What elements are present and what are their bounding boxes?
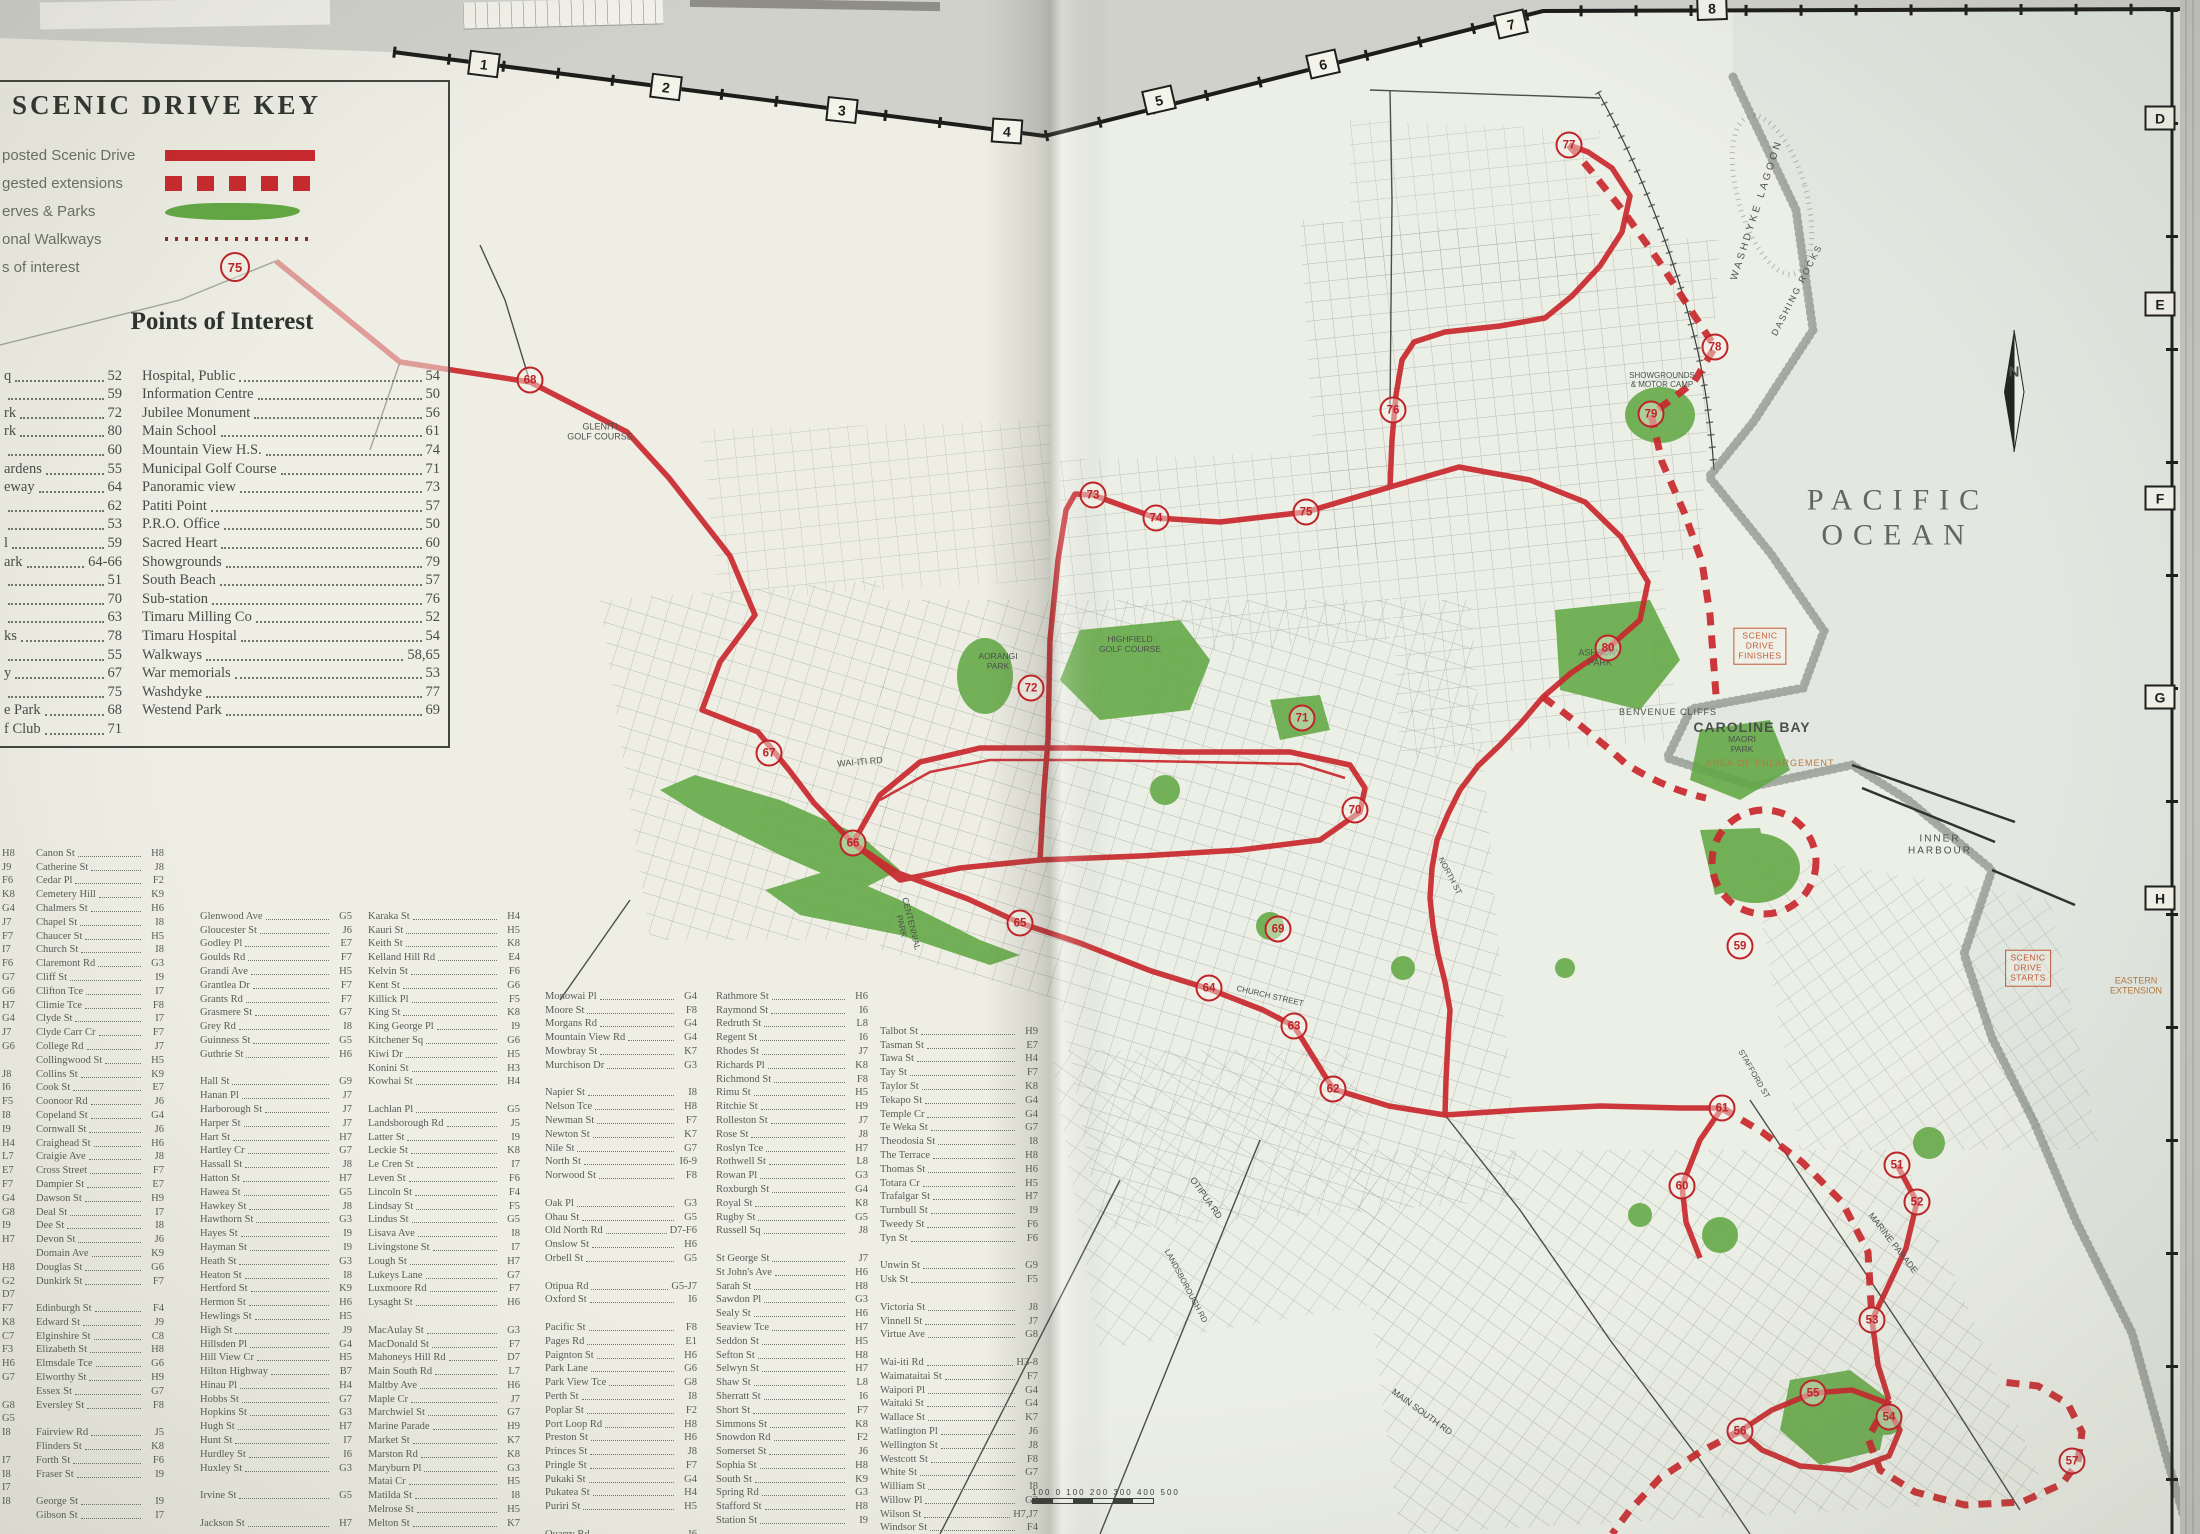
grid-reference: I9 [500,1132,520,1143]
index-entry: Copeland StG4 [36,1107,164,1121]
index-entry: Seaview TceH7 [716,1319,868,1333]
grid-reference: L8 [848,1377,868,1388]
poi-map-marker: 68 [517,367,544,394]
dot-leader [412,1071,497,1072]
street-name: Eversley St [36,1400,84,1411]
dot-leader [587,1344,674,1345]
street-name: Cemetery Hill [36,889,96,900]
street-name: King St [368,1007,400,1018]
index-entry: College RdJ7 [36,1038,164,1052]
dot-leader [426,1278,497,1279]
index-entry: Hurdley StI6 [200,1446,352,1460]
index-entry: Devon StJ6 [36,1231,164,1245]
index-entry: Windsor StF4 [880,1520,1038,1534]
dot-leader [591,1440,674,1441]
index-entry: Quarry RdI6 [545,1526,697,1534]
index-entry: Fraser StI9 [36,1466,164,1480]
poi-map-marker: 62 [1320,1076,1347,1103]
dot-leader [768,1068,845,1069]
street-name: Morgans Rd [545,1018,597,1029]
grid-reference: I6 [848,1391,868,1402]
grid-reference: I6 [332,1449,352,1460]
street-name: Unwin St [880,1260,920,1271]
street-name: Killick Pl [368,994,409,1005]
poi-entry: Main School61 [142,422,440,441]
grid-reference: F7 [144,1027,164,1038]
index-entry: I9 [2,1218,30,1232]
index-entry: F6 [2,873,30,887]
street-name: Devon St [36,1234,75,1245]
dot-leader [235,1443,329,1444]
index-entry: Matai CrH5 [368,1474,520,1488]
index-entry: Hart StH7 [200,1129,352,1143]
grid-reference: I9 [2,1220,22,1231]
street-name: Marchwiel St [368,1407,425,1418]
index-entry: H4 [2,1135,30,1149]
grid-reference: H4 [677,1487,697,1498]
street-name: Market St [368,1435,410,1446]
index-column: Monowai PlG4Moore StF8Morgans RdG4Mounta… [545,988,697,1534]
dot-leader [409,1484,497,1485]
grid-reference: E7 [144,1179,164,1190]
dot-leader [239,1498,329,1499]
index-entry: Douglas StG6 [36,1259,164,1273]
street-name: Seddon St [716,1336,759,1347]
index-entry: G5 [2,1411,30,1425]
dot-leader [409,1181,497,1182]
index-entry: Canon StH8 [36,845,164,859]
index-entry: Heath StG3 [200,1253,352,1267]
dot-leader [212,603,421,605]
dot-leader [257,1360,329,1361]
street-name: Clyde St [36,1013,72,1024]
grid-reference: I6 [677,1529,697,1534]
street-name: Collins St [36,1069,78,1080]
poi-map-marker: 57 [2059,1448,2086,1475]
grid-reference: H5 [144,1055,164,1066]
dot-leader [8,454,104,456]
street-name: Park View Tce [545,1377,606,1388]
dot-leader [73,1463,141,1464]
index-entry: Elginshire StC8 [36,1328,164,1342]
grid-reference: G5-J7 [671,1281,697,1292]
index-entry: K8 [2,1314,30,1328]
grid-reference: L7 [2,1151,22,1162]
poi-entry: y67 [4,664,122,683]
grid-reference: J6 [144,1096,164,1107]
poi-heading: Points of Interest [0,308,448,336]
grid-reference: G4 [1018,1109,1038,1120]
street-name: Redruth St [716,1018,761,1029]
grid-reference: G6 [677,1363,697,1374]
map-label: AREA OF ENLARGEMENT [1705,758,1834,768]
grid-reference: F6 [500,1173,520,1184]
dot-leader [89,1380,141,1381]
dot-leader [239,1264,329,1265]
index-entry: G4 [2,900,30,914]
grid-reference: F7 [677,1115,697,1126]
grid-reference: F5 [1018,1274,1038,1285]
index-column: H8J9F6K8G4J7F7I7F6G7G6H7G4J7G6J8I6F5I8I9… [2,845,30,1507]
index-entry: Church StI8 [36,942,164,956]
poi-map-marker: 51 [1884,1152,1911,1179]
street-name: George St [36,1496,78,1507]
dot-leader [755,1482,845,1483]
grid-reference: I7 [2,944,22,955]
street-name: Elmsdale Tce [36,1358,93,1369]
dot-leader [12,547,103,549]
street-name: Vinnell St [880,1316,922,1327]
street-name: Lindsay St [368,1201,413,1212]
street-name: Guinness St [200,1035,250,1046]
index-entry: Elizabeth StH8 [36,1342,164,1356]
street-name: Hall St [200,1076,229,1087]
street-name: Lukeys Lane [368,1270,423,1281]
grid-reference: H8 [848,1350,868,1361]
index-entry: Gloucester StJ6 [200,922,352,936]
grid-reference: D7 [500,1352,520,1363]
grid-reference: H4 [332,1380,352,1391]
grid-reference: H9 [1018,1026,1038,1037]
index-entry: Puriri StH5 [545,1498,697,1512]
street-name: Harborough St [200,1104,262,1115]
index-entry: L7 [2,1149,30,1163]
poi-name: Main School [142,423,217,440]
dot-leader [924,1517,1010,1518]
dot-leader [89,1159,141,1160]
grid-reference: F8 [677,1005,697,1016]
grid-reference: H4 [500,911,520,922]
street-name: Pukaki St [545,1474,586,1485]
poi-map-marker: 73 [1080,482,1107,509]
index-entry: G7 [2,969,30,983]
poi-grid-number: 57 [426,498,441,515]
index-entry: Hayman StI9 [200,1239,352,1253]
grid-reference: G6 [2,1041,22,1052]
street-name: Latter St [368,1132,404,1143]
street-name: Rothwell St [716,1156,766,1167]
grid-reference: F6 [500,966,520,977]
grid-reference: G4 [677,1474,697,1485]
dot-leader [410,1264,497,1265]
index-entry: Temple CrG4 [880,1106,1038,1120]
street-name: Keith St [368,938,403,949]
poi-entry: 60 [4,440,122,459]
index-entry: Thomas StH6 [880,1161,1038,1175]
index-entry: Mahoneys Hill RdD7 [368,1350,520,1364]
index-entry: Waipori PlG4 [880,1382,1038,1396]
street-name: Roslyn Tce [716,1143,763,1154]
dot-leader [248,1153,329,1154]
index-entry: Chalmers StH6 [36,900,164,914]
index-entry: Rimu StH5 [716,1085,868,1099]
dot-leader [588,1095,674,1096]
index-entry: Edinburgh StF4 [36,1300,164,1314]
index-entry: South StK9 [716,1471,868,1485]
street-name: Napier St [545,1087,585,1098]
street-name: William St [880,1481,925,1492]
grid-reference: L8 [848,1018,868,1029]
legend-label: erves & Parks [2,203,152,220]
index-entry: Shaw StL8 [716,1374,868,1388]
index-entry: Moore StF8 [545,1002,697,1016]
poi-grid-number: 67 [108,665,123,682]
grid-reference: H7 [2,1000,22,1011]
index-entry: Collins StK9 [36,1066,164,1080]
dot-leader [8,603,104,605]
grid-reference: F5 [500,994,520,1005]
grid-reference: K8 [2,1317,22,1328]
grid-reference: I8 [2,1469,22,1480]
index-entry: Landsborough RdJ5 [368,1115,520,1129]
index-entry: I8 [2,1466,30,1480]
street-name: Lysaght St [368,1297,413,1308]
index-entry: Hayes StI9 [200,1225,352,1239]
index-entry: Watlington PlJ6 [880,1423,1038,1437]
index-entry: Catherine StJ8 [36,859,164,873]
dot-leader [449,1360,497,1361]
dot-leader [412,1002,497,1003]
grid-reference: H7 [848,1363,868,1374]
street-name: Ritchie St [716,1101,758,1112]
poi-map-marker: 71 [1289,705,1316,732]
poi-grid-number: 54 [426,368,441,385]
dot-leader [411,1153,497,1154]
index-entry: Kent StG6 [368,977,520,991]
grid-reference: H7 [332,1421,352,1432]
index-entry: Rowan PlG3 [716,1167,868,1181]
poi-map-marker: 67 [756,740,783,767]
poi-grid-number: 55 [108,647,123,664]
grid-reference: G4 [1018,1398,1038,1409]
dot-leader [85,1270,141,1271]
index-entry: Huxley StG3 [200,1460,352,1474]
index-entry: Grey RdI8 [200,1018,352,1032]
grid-reference: H5 [848,1336,868,1347]
dot-leader [8,398,104,400]
index-entry: Clyde StI7 [36,1011,164,1025]
poi-grid-number: 60 [426,535,441,552]
poi-map-marker: 53 [1859,1307,1886,1334]
dot-leader [753,1413,845,1414]
grid-reference: G7 [2,1372,22,1383]
index-entry: Hawea StG5 [200,1184,352,1198]
grid-reference: H8 [848,1281,868,1292]
grid-reference: H6 [144,1138,164,1149]
dot-leader [583,1509,674,1510]
dot-leader [577,1151,674,1152]
grid-reference: G5 [500,1104,520,1115]
street-name: Hugh St [200,1421,235,1432]
dot-leader [928,1172,1015,1173]
index-entry: Cross StreetF7 [36,1162,164,1176]
index-entry: Jackson StH7 [200,1515,352,1529]
route-note-box: SCENIC DRIVE FINISHES [1733,628,1786,665]
grid-reference: G5 [677,1212,697,1223]
grid-reference: G4 [2,1193,22,1204]
poi-name-fragment: rk [4,423,16,440]
index-entry: Grandi AveH5 [200,963,352,977]
dot-leader [416,1209,497,1210]
index-entry: Victoria StJ8 [880,1299,1038,1313]
grid-reference: K8 [2,889,22,900]
street-name: Luxmoore Rd [368,1283,427,1294]
grid-reference: H6 [848,991,868,1002]
grid-reference: I8 [2,1427,22,1438]
grid-reference: G7 [2,972,22,983]
poi-grid-number: 75 [108,684,123,701]
index-entry: Lincoln StF4 [368,1184,520,1198]
index-entry: Hinau PlH4 [200,1377,352,1391]
index-group-gap [200,1474,352,1488]
grid-reference: J9 [144,1317,164,1328]
poi-entry: Sub-station76 [142,589,440,608]
dot-leader [241,1236,329,1237]
poi-entry: 75 [4,682,122,701]
dot-leader [91,911,141,912]
street-name: Preston St [545,1432,588,1443]
street-name: Hanan Pl [200,1090,239,1101]
dot-leader [755,1206,845,1207]
poi-entry: 62 [4,496,122,515]
grid-reference: I7 [500,1159,520,1170]
street-name: Lough St [368,1256,407,1267]
dot-leader [927,1048,1015,1049]
dot-leader [920,1475,1015,1476]
dot-leader [928,1489,1015,1490]
street-name: Melton St [368,1518,410,1529]
street-name: Claremont Rd [36,958,95,969]
index-group-gap [368,1087,520,1101]
poi-entry: Washdyke77 [142,682,440,701]
street-name: Richards Pl [716,1060,765,1071]
grid-reference: K8 [500,938,520,949]
poi-map-marker: 52 [1904,1189,1931,1216]
grid-reference: J6 [848,1446,868,1457]
grid-reference: I9 [144,972,164,983]
dot-leader [249,1209,329,1210]
dot-leader [73,1090,141,1091]
dot-leader [99,897,141,898]
dot-leader [91,1118,141,1119]
index-entry: Glenwood AveG5 [200,908,352,922]
grid-reference: G8 [1018,1329,1038,1340]
dot-leader [20,435,103,437]
index-entry: Le Cren StI7 [368,1156,520,1170]
street-name: Cook St [36,1082,70,1093]
index-entry: King StK8 [368,1005,520,1019]
index-entry: Te Weka StG7 [880,1120,1038,1134]
index-entry: Rolleston StJ7 [716,1112,868,1126]
grid-reference: H9 [144,1372,164,1383]
street-name: Pukatea St [545,1487,590,1498]
street-name: Edward St [36,1317,80,1328]
index-entry: I8 [2,1493,30,1507]
index-entry: Waimataitai StF7 [880,1368,1038,1382]
street-name: Kauri St [368,925,403,936]
grid-reference: H7 [1018,1191,1038,1202]
index-entry: Tasman StE7 [880,1037,1038,1051]
poi-entry: ardens55 [4,459,122,478]
poi-entry: 51 [4,571,122,590]
grid-reference: I8 [1018,1136,1038,1147]
poi-grid-number: 64 [108,479,123,496]
dashed-route-swatch [165,176,325,191]
grid-reference: H6 [677,1432,697,1443]
street-name: MacDonald St [368,1339,429,1350]
street-name: Copeland St [36,1110,88,1121]
dot-leader [15,677,103,679]
index-group-gap [36,1411,164,1425]
index-entry: Newton StK7 [545,1126,697,1140]
index-entry: Rose StJ8 [716,1126,868,1140]
index-entry: Oak PlG3 [545,1195,697,1209]
poi-name: Hospital, Public [142,368,235,385]
dot-leader [591,1371,674,1372]
index-entry: F7 [2,1300,30,1314]
street-name: Simmons St [716,1419,767,1430]
street-name: Grandi Ave [200,966,248,977]
dot-leader [406,946,497,947]
street-name: Hawthorn St [200,1214,253,1225]
dot-leader [256,621,422,623]
grid-reference: G6 [144,1358,164,1369]
poi-grid-number: 57 [426,572,441,589]
poi-map-marker: 54 [1876,1404,1903,1431]
grid-reference: F8 [848,1074,868,1085]
index-entry: Kelvin StF6 [368,963,520,977]
dot-leader [412,1222,497,1223]
index-entry: Port Loop RdH8 [545,1416,697,1430]
scale-bar: 100 0 100 200 300 400 500 [1032,1488,1180,1504]
dot-leader [769,1164,845,1165]
index-entry: Maltby AveH6 [368,1377,520,1391]
index-entry: Turnbull StI9 [880,1202,1038,1216]
street-name: Dee St [36,1220,64,1231]
index-entry: St George StJ7 [716,1250,868,1264]
dot-leader [758,1358,845,1359]
dot-leader [590,1302,674,1303]
index-entry: Clifton TceI7 [36,983,164,997]
index-entry: I7 [2,942,30,956]
street-name: Coonoor Rd [36,1096,88,1107]
dot-leader [244,1195,329,1196]
poi-map-marker: 70 [1342,797,1369,824]
dot-leader [927,1406,1015,1407]
index-entry: Poplar StF2 [545,1402,697,1416]
dot-leader [416,1112,497,1113]
index-entry: Guinness StG5 [200,1032,352,1046]
grid-reference: K8 [848,1198,868,1209]
grid-reference: I9 [144,1469,164,1480]
street-name: Fraser St [36,1469,74,1480]
poi-entry: Information Centre50 [142,385,440,404]
poi-grid-number: 50 [426,386,441,403]
dot-leader [411,974,497,975]
grid-reference: J7 [144,1041,164,1052]
dot-leader [244,1126,329,1127]
grid-column-label: 1 [467,50,501,79]
dot-leader [754,1316,845,1317]
grid-reference: J9 [332,1325,352,1336]
dot-leader [597,1123,674,1124]
street-name: Raymond St [716,1005,768,1016]
dot-leader [931,1462,1015,1463]
dot-leader [760,1178,845,1179]
street-name: Kelland Hill Rd [368,952,435,963]
grid-reference: G4 [848,1184,868,1195]
index-entry: Maple CrJ7 [368,1391,520,1405]
